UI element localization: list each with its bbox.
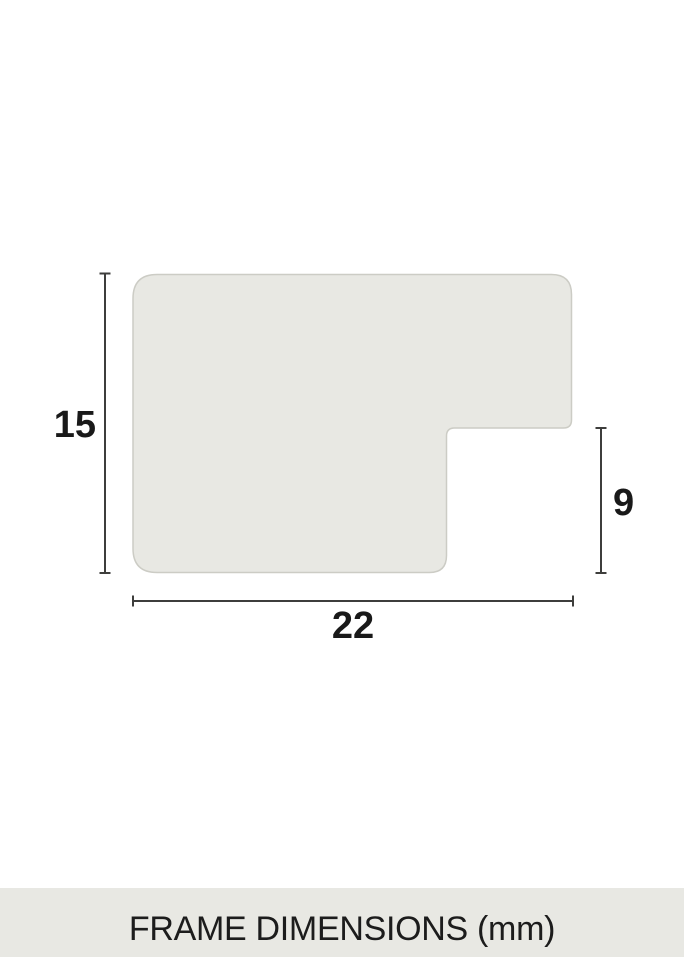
dimension-height [100, 274, 111, 574]
dimension-notch [596, 428, 607, 573]
frame-profile-diagram: 15 9 22 [0, 0, 684, 888]
dimension-height-label: 15 [54, 404, 96, 446]
footer-caption-bar: FRAME DIMENSIONS (mm) [0, 888, 684, 957]
frame-profile-shape [133, 275, 572, 573]
dimension-width-label: 22 [332, 605, 374, 647]
dimension-notch-label: 9 [613, 482, 634, 524]
footer-caption-label: FRAME DIMENSIONS (mm) [129, 910, 555, 949]
